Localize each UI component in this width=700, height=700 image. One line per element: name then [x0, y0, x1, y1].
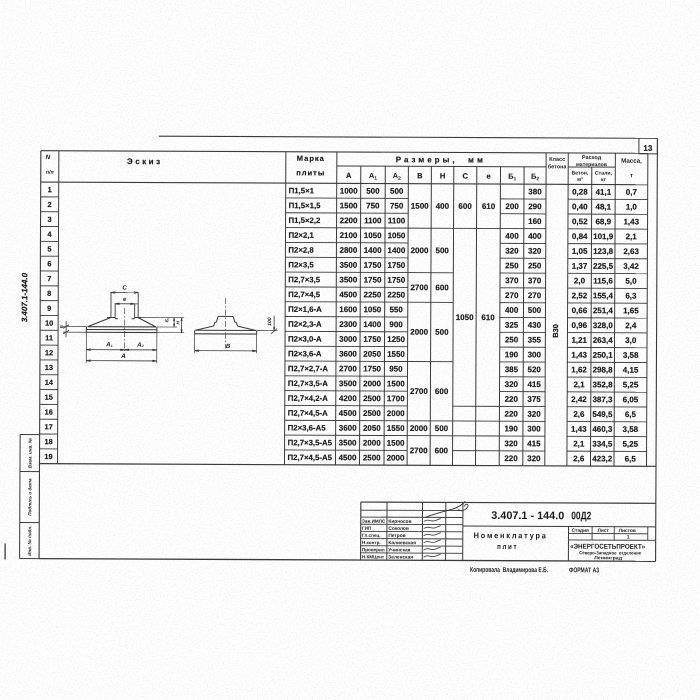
svg-text:Расход: Расход — [582, 155, 602, 161]
svg-text:ФОРМАТ А3: ФОРМАТ А3 — [569, 567, 599, 574]
svg-text:10: 10 — [45, 319, 53, 328]
svg-text:5,0: 5,0 — [625, 277, 637, 286]
svg-text:387,3: 387,3 — [592, 395, 613, 404]
svg-text:270: 270 — [528, 291, 542, 300]
svg-text:П2,7×3,5: П2,7×3,5 — [288, 275, 321, 284]
svg-text:3: 3 — [47, 215, 51, 224]
svg-text:А₂: А₂ — [136, 342, 144, 349]
svg-text:Инв. № подл.: Инв. № подл. — [27, 525, 32, 556]
svg-text:251,4: 251,4 — [593, 306, 614, 315]
svg-text:Стали,: Стали, — [595, 171, 613, 177]
svg-text:334,5: 334,5 — [592, 440, 613, 449]
svg-text:2,0: 2,0 — [574, 276, 586, 285]
svg-text:4200: 4200 — [339, 394, 357, 403]
svg-text:2,42: 2,42 — [571, 395, 587, 404]
svg-text:370: 370 — [505, 276, 519, 285]
svg-text:т: т — [630, 172, 633, 179]
svg-text:3000: 3000 — [339, 335, 357, 344]
svg-text:Взам. инв. №: Взам. инв. № — [27, 437, 32, 468]
svg-text:2500: 2500 — [363, 453, 381, 462]
svg-text:Гл.спец.: Гл.спец. — [362, 533, 381, 538]
svg-text:11: 11 — [45, 333, 53, 342]
svg-text:1750: 1750 — [364, 275, 382, 284]
svg-text:1750: 1750 — [364, 261, 382, 270]
svg-text:Проверил: Проверил — [362, 547, 385, 552]
svg-text:5,25: 5,25 — [623, 380, 639, 389]
svg-text:3,42: 3,42 — [623, 262, 639, 271]
svg-text:400: 400 — [505, 232, 519, 241]
svg-text:Эскиз: Эскиз — [127, 157, 163, 166]
svg-text:П1,5×1: П1,5×1 — [289, 186, 315, 195]
svg-text:600: 600 — [435, 446, 449, 455]
svg-text:2000: 2000 — [363, 439, 381, 448]
svg-text:Размеры, мм: Размеры, мм — [396, 155, 486, 164]
svg-text:300: 300 — [527, 424, 541, 433]
svg-text:423,2: 423,2 — [592, 454, 613, 463]
svg-text:190: 190 — [504, 424, 518, 433]
svg-text:500: 500 — [528, 306, 542, 315]
svg-text:А: А — [346, 171, 352, 180]
svg-text:520: 520 — [528, 365, 542, 374]
svg-text:2200: 2200 — [340, 216, 358, 225]
svg-text:2050: 2050 — [363, 424, 381, 433]
svg-text:320: 320 — [527, 410, 541, 419]
svg-text:Петров: Петров — [388, 533, 405, 539]
svg-text:13: 13 — [45, 363, 53, 372]
svg-text:4500: 4500 — [339, 290, 357, 299]
svg-text:В: В — [226, 344, 231, 350]
svg-text:68,9: 68,9 — [595, 217, 611, 226]
svg-text:1100: 1100 — [364, 216, 382, 225]
svg-text:2,1: 2,1 — [573, 439, 585, 448]
svg-text:2000: 2000 — [387, 453, 405, 462]
svg-text:м³: м³ — [577, 177, 583, 183]
svg-text:549,5: 549,5 — [592, 410, 613, 419]
svg-text:352,8: 352,8 — [593, 380, 614, 389]
svg-text:Номенклатура: Номенклатура — [474, 531, 548, 540]
svg-text:ГИП: ГИП — [362, 526, 371, 531]
svg-text:1400: 1400 — [364, 246, 382, 255]
svg-text:плит: плит — [497, 542, 518, 551]
svg-text:П2,7×4,5: П2,7×4,5 — [288, 290, 321, 299]
svg-text:1100: 1100 — [388, 216, 406, 225]
svg-text:П2×3,6-А5: П2×3,6-А5 — [288, 423, 327, 432]
svg-text:0,84: 0,84 — [572, 232, 588, 241]
svg-text:Н.контр.: Н.контр. — [362, 540, 381, 545]
svg-text:500: 500 — [436, 246, 450, 255]
svg-text:плиты: плиты — [296, 168, 325, 177]
svg-text:2000: 2000 — [410, 424, 428, 433]
svg-text:500: 500 — [390, 187, 404, 196]
svg-text:17: 17 — [45, 422, 53, 431]
svg-text:2500: 2500 — [363, 394, 381, 403]
svg-text:6: 6 — [47, 259, 51, 268]
svg-text:1,43: 1,43 — [623, 217, 639, 226]
svg-text:кг: кг — [601, 177, 607, 183]
svg-text:П2×2,1: П2×2,1 — [288, 231, 314, 240]
svg-text:бетона: бетона — [548, 163, 568, 170]
svg-text:320: 320 — [504, 439, 518, 448]
svg-text:Учинская: Учинская — [388, 547, 410, 553]
svg-text:П2×3,0-А: П2×3,0-А — [288, 334, 322, 343]
svg-text:Марка: Марка — [297, 154, 325, 163]
svg-text:385: 385 — [505, 365, 519, 374]
svg-text:6,5: 6,5 — [625, 454, 637, 463]
svg-text:123,8: 123,8 — [593, 247, 614, 256]
svg-text:190: 190 — [505, 350, 519, 359]
svg-text:Масса,: Масса, — [621, 158, 642, 165]
svg-text:200: 200 — [505, 202, 519, 211]
svg-text:48,1: 48,1 — [596, 202, 612, 211]
svg-text:430: 430 — [528, 321, 542, 330]
svg-text:1500: 1500 — [411, 202, 429, 211]
svg-text:3,58: 3,58 — [623, 425, 639, 434]
svg-text:400: 400 — [505, 306, 519, 315]
svg-text:750: 750 — [366, 201, 380, 210]
svg-text:400: 400 — [436, 202, 450, 211]
svg-text:225,5: 225,5 — [593, 262, 614, 271]
svg-text:П2,7×4,5-А: П2,7×4,5-А — [288, 409, 328, 418]
svg-text:Н: Н — [440, 171, 445, 180]
svg-text:Калиевская: Калиевская — [388, 540, 416, 546]
svg-text:220: 220 — [505, 395, 519, 404]
svg-text:Н: Н — [176, 320, 182, 324]
svg-text:Стадия: Стадия — [572, 528, 590, 534]
svg-text:3500: 3500 — [339, 275, 357, 284]
svg-text:610: 610 — [481, 313, 495, 322]
svg-text:250: 250 — [505, 335, 519, 344]
svg-text:2000: 2000 — [387, 409, 405, 418]
svg-text:0,7: 0,7 — [626, 188, 638, 197]
svg-text:900: 900 — [389, 320, 403, 329]
svg-text:1500: 1500 — [340, 201, 358, 210]
svg-text:2,4: 2,4 — [625, 321, 637, 330]
svg-text:220: 220 — [505, 410, 519, 419]
svg-text:263,4: 263,4 — [593, 336, 614, 345]
svg-text:1600: 1600 — [339, 305, 357, 314]
svg-text:В30: В30 — [551, 324, 560, 338]
svg-text:Кирносов: Кирносов — [388, 519, 411, 525]
svg-text:12: 12 — [45, 348, 53, 357]
svg-text:П2,7×4,5-А5: П2,7×4,5-А5 — [288, 453, 333, 462]
svg-text:С: С — [122, 286, 127, 292]
svg-text:600: 600 — [458, 202, 472, 211]
svg-text:250,1: 250,1 — [593, 351, 614, 360]
svg-text:1,62: 1,62 — [571, 365, 587, 374]
svg-text:00Д2: 00Д2 — [571, 510, 591, 522]
svg-text:5: 5 — [47, 244, 51, 253]
svg-text:950: 950 — [389, 365, 403, 374]
svg-text:415: 415 — [527, 439, 541, 448]
svg-text:1250: 1250 — [387, 335, 405, 344]
svg-text:Листов: Листов — [619, 528, 636, 534]
svg-text:100: 100 — [267, 317, 273, 326]
svg-text:3500: 3500 — [339, 261, 357, 270]
svg-text:N: N — [45, 154, 50, 161]
svg-text:9: 9 — [47, 304, 51, 313]
svg-text:1,65: 1,65 — [623, 306, 639, 315]
svg-text:610: 610 — [482, 202, 496, 211]
svg-text:Класс: Класс — [549, 157, 565, 163]
svg-text:375: 375 — [527, 395, 541, 404]
svg-text:16: 16 — [45, 407, 53, 416]
svg-text:1750: 1750 — [363, 364, 381, 373]
svg-text:1,21: 1,21 — [571, 336, 587, 345]
svg-text:1550: 1550 — [387, 350, 405, 359]
svg-text:300: 300 — [528, 350, 542, 359]
svg-text:370: 370 — [528, 276, 542, 285]
svg-text:101,9: 101,9 — [593, 232, 614, 241]
svg-text:4500: 4500 — [339, 453, 357, 462]
svg-text:2500: 2500 — [363, 409, 381, 418]
svg-text:380: 380 — [528, 187, 542, 196]
svg-text:А: А — [120, 353, 126, 360]
svg-text:1750: 1750 — [363, 335, 381, 344]
svg-text:290: 290 — [528, 202, 542, 211]
svg-text:е: е — [487, 172, 491, 181]
svg-text:115,6: 115,6 — [593, 276, 613, 285]
svg-text:600: 600 — [435, 387, 449, 396]
svg-text:3.407.1 - 144.0: 3.407.1 - 144.0 — [491, 510, 564, 522]
svg-text:2,1: 2,1 — [573, 380, 585, 389]
svg-text:П2×3,5: П2×3,5 — [288, 260, 314, 269]
svg-text:Копировала Владимирова Е.Б.: Копировала Владимирова Е.Б. — [470, 567, 548, 574]
svg-text:1750: 1750 — [387, 261, 405, 270]
svg-text:600: 600 — [435, 283, 449, 292]
svg-text:П2×2,8: П2×2,8 — [288, 246, 314, 255]
svg-text:3,58: 3,58 — [623, 351, 639, 360]
svg-text:1,43: 1,43 — [571, 351, 587, 360]
svg-text:4,15: 4,15 — [623, 366, 639, 375]
svg-text:П1,5×1,5: П1,5×1,5 — [289, 201, 322, 210]
svg-text:2,1: 2,1 — [626, 232, 638, 241]
svg-text:328,0: 328,0 — [593, 321, 614, 330]
svg-text:500: 500 — [435, 328, 449, 337]
svg-text:298,8: 298,8 — [593, 365, 614, 374]
svg-text:П2,7×3,5-А5: П2,7×3,5-А5 — [288, 438, 333, 447]
svg-text:3500: 3500 — [339, 379, 357, 388]
svg-text:320: 320 — [528, 247, 542, 256]
svg-text:3600: 3600 — [339, 349, 357, 358]
svg-text:5,25: 5,25 — [622, 440, 638, 449]
svg-text:П2,7×4,2-А: П2,7×4,2-А — [288, 394, 328, 403]
svg-text:7: 7 — [47, 274, 51, 283]
svg-text:19: 19 — [44, 452, 52, 461]
svg-text:1750: 1750 — [387, 276, 405, 285]
svg-text:460,3: 460,3 — [592, 425, 613, 434]
svg-text:П2,7×3,5-А: П2,7×3,5-А — [288, 379, 328, 388]
svg-text:2,63: 2,63 — [623, 247, 639, 256]
svg-text:2250: 2250 — [364, 290, 382, 299]
svg-text:2,52: 2,52 — [572, 291, 588, 300]
svg-text:Ленинград: Ленинград — [594, 555, 622, 560]
svg-text:1,37: 1,37 — [572, 262, 588, 271]
svg-text:П2,7×2,7-А: П2,7×2,7-А — [288, 364, 328, 373]
svg-text:1050: 1050 — [363, 305, 381, 314]
svg-text:500: 500 — [366, 187, 380, 196]
svg-text:2100: 2100 — [340, 231, 358, 240]
svg-text:2050: 2050 — [363, 350, 381, 359]
svg-text:160: 160 — [528, 217, 542, 226]
svg-text:41,1: 41,1 — [596, 188, 612, 197]
svg-text:2700: 2700 — [410, 283, 428, 292]
svg-text:1500: 1500 — [387, 379, 405, 388]
svg-text:6,5: 6,5 — [625, 410, 637, 419]
svg-text:Лист: Лист — [598, 528, 610, 534]
svg-text:270: 270 — [505, 291, 519, 300]
svg-text:Подпись и дата: Подпись и дата — [27, 478, 32, 516]
svg-text:2250: 2250 — [387, 290, 405, 299]
svg-text:2000: 2000 — [363, 379, 381, 388]
svg-text:0,96: 0,96 — [572, 321, 588, 330]
svg-text:1000: 1000 — [340, 186, 358, 195]
svg-text:2,6: 2,6 — [573, 410, 585, 419]
svg-text:15: 15 — [45, 393, 53, 402]
svg-text:8: 8 — [47, 289, 51, 298]
svg-text:3.407.1-144.0: 3.407.1-144.0 — [20, 272, 29, 322]
svg-text:500: 500 — [435, 424, 449, 433]
svg-text:п/п: п/п — [46, 170, 55, 176]
svg-text:0,28: 0,28 — [572, 187, 588, 196]
svg-text:А₁: А₁ — [105, 341, 113, 348]
svg-text:1500: 1500 — [387, 439, 405, 448]
svg-text:1,0: 1,0 — [626, 203, 638, 212]
svg-text:1: 1 — [627, 535, 630, 541]
svg-text:355: 355 — [528, 335, 542, 344]
svg-text:320: 320 — [505, 380, 519, 389]
svg-text:П1,5×2,2: П1,5×2,2 — [289, 216, 322, 225]
svg-text:13: 13 — [643, 144, 652, 153]
svg-text:П2×1,6-А: П2×1,6-А — [288, 305, 322, 314]
svg-text:325: 325 — [505, 321, 519, 330]
svg-text:1050: 1050 — [388, 231, 406, 240]
svg-text:2,6: 2,6 — [573, 454, 585, 463]
svg-text:2: 2 — [48, 200, 52, 209]
svg-text:14: 14 — [45, 378, 54, 387]
svg-text:П2×3,6-А: П2×3,6-А — [288, 349, 322, 358]
svg-text:1050: 1050 — [456, 313, 474, 322]
svg-text:1: 1 — [48, 185, 52, 194]
svg-text:С: С — [463, 171, 469, 180]
svg-text:1550: 1550 — [387, 424, 405, 433]
svg-text:П2×2,3-А: П2×2,3-А — [288, 320, 322, 329]
svg-text:материалов: материалов — [576, 162, 607, 168]
svg-text:1,43: 1,43 — [571, 425, 587, 434]
svg-text:3600: 3600 — [339, 424, 357, 433]
svg-text:1400: 1400 — [388, 246, 406, 255]
svg-text:Соколов: Соколов — [388, 526, 408, 532]
svg-text:В: В — [417, 171, 423, 180]
svg-text:220: 220 — [504, 454, 518, 463]
svg-text:320: 320 — [505, 246, 519, 255]
svg-text:Бетон,: Бетон, — [572, 170, 589, 176]
svg-text:320: 320 — [527, 454, 541, 463]
svg-text:400: 400 — [528, 232, 542, 241]
svg-text:4500: 4500 — [339, 409, 357, 418]
svg-text:1700: 1700 — [387, 394, 405, 403]
svg-text:Н.КМЦент: Н.КМЦент — [362, 554, 385, 559]
svg-text:550: 550 — [389, 305, 403, 314]
svg-text:Зеленская: Зеленская — [388, 554, 413, 560]
svg-text:0,40: 0,40 — [572, 202, 588, 211]
svg-text:2000: 2000 — [410, 328, 428, 337]
svg-text:250: 250 — [505, 261, 519, 270]
svg-text:Зав.ИМЛС: Зав.ИМЛС — [362, 519, 386, 524]
svg-text:18: 18 — [44, 437, 52, 446]
svg-text:0,66: 0,66 — [572, 306, 588, 315]
svg-text:250: 250 — [528, 261, 542, 270]
svg-text:3500: 3500 — [339, 438, 357, 447]
svg-text:2700: 2700 — [410, 446, 428, 455]
svg-text:2700: 2700 — [410, 387, 428, 396]
svg-text:415: 415 — [527, 380, 541, 389]
svg-text:1050: 1050 — [364, 231, 382, 240]
svg-text:1400: 1400 — [363, 320, 381, 329]
svg-text:1,05: 1,05 — [572, 247, 588, 256]
svg-text:0,52: 0,52 — [572, 217, 588, 226]
svg-text:6,3: 6,3 — [625, 291, 637, 300]
svg-text:750: 750 — [390, 202, 404, 211]
svg-text:2300: 2300 — [339, 320, 357, 329]
svg-text:3,0: 3,0 — [625, 336, 637, 345]
svg-text:155,4: 155,4 — [593, 291, 614, 300]
svg-text:2800: 2800 — [340, 246, 358, 255]
svg-text:6,05: 6,05 — [623, 395, 639, 404]
svg-text:2000: 2000 — [411, 246, 429, 255]
svg-text:2700: 2700 — [339, 364, 357, 373]
